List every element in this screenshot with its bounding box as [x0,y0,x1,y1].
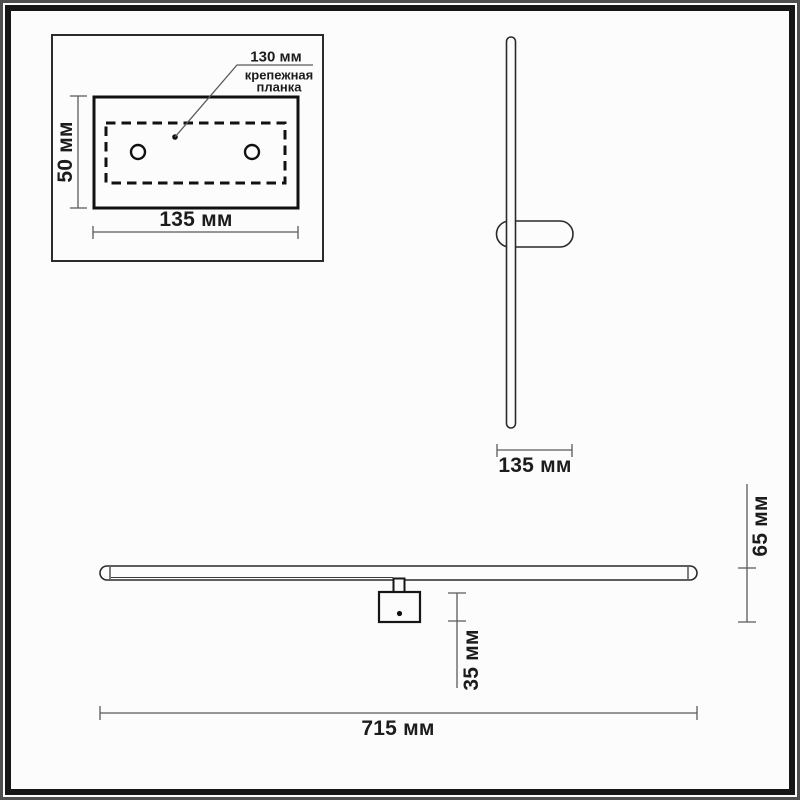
front-view [100,484,756,720]
dim-label-715mm: 715 мм [361,717,434,741]
dim-label-35mm: 35 мм [460,629,484,690]
dim-label-135mm-side: 135 мм [498,454,571,478]
side-view [497,37,574,457]
dim-label-130mm: 130 мм [250,49,301,66]
mounting-bracket-label: крепежная планка [245,70,313,93]
technical-drawing-page: 130 мм крепежная планка 50 мм 135 мм 135… [0,0,800,800]
dim-label-135mm-plate: 135 мм [159,208,232,232]
driver-box-outline [379,592,420,622]
lamp-tube-side-outline [507,37,516,428]
driver-neck-outline [394,579,405,593]
dim-label-50mm: 50 мм [54,121,78,182]
technical-drawing-svg [0,0,800,800]
driver-box-dot [397,611,402,616]
mounting-plate-outline [94,97,298,208]
dim-label-65mm: 65 мм [749,495,773,556]
mounting-bracket-label-line2: планка [245,81,313,93]
